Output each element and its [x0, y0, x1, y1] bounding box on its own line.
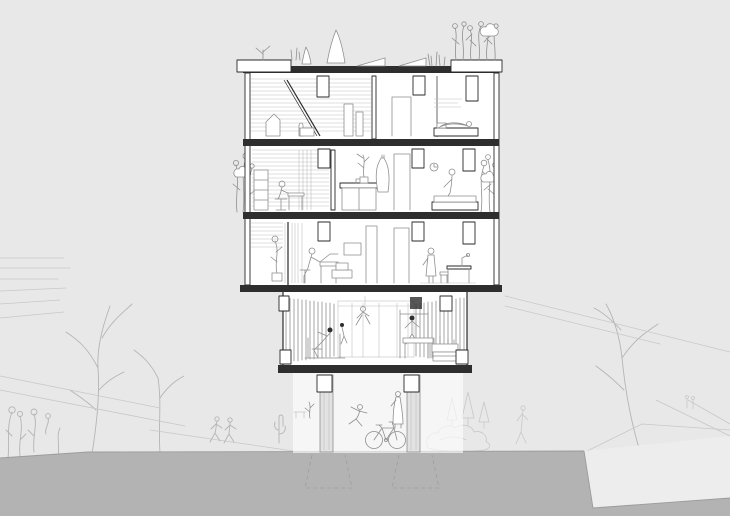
- section-drawing: [0, 0, 730, 516]
- beam-stub-right: [404, 375, 419, 392]
- kitchen-counter: [340, 179, 378, 210]
- beam-section: [463, 222, 475, 244]
- architectural-section-figure: [0, 0, 730, 516]
- bottom-slab: [278, 365, 472, 373]
- planter-left: [237, 60, 291, 72]
- beam-section: [412, 149, 424, 168]
- beam-stub-left: [317, 375, 332, 392]
- beam-section: [463, 149, 475, 171]
- beam-section: [318, 222, 330, 241]
- bed-with-person-lying: [434, 122, 478, 137]
- floor-slab-1: [243, 139, 499, 146]
- box: [332, 270, 352, 278]
- floor-slab-3: [240, 285, 502, 292]
- bed: [432, 196, 478, 210]
- beam-section: [412, 222, 424, 241]
- wall-cabinet: [410, 297, 422, 309]
- low-table: [300, 128, 314, 136]
- left-wall: [245, 73, 250, 285]
- box: [336, 263, 348, 270]
- corner-post: [440, 296, 452, 311]
- cabinet: [344, 104, 353, 136]
- beam-section: [317, 76, 329, 97]
- corner-post: [279, 296, 289, 311]
- beam-section: [466, 76, 478, 101]
- planter-right: [451, 60, 502, 72]
- corner-post: [280, 350, 291, 364]
- cabinet: [356, 112, 363, 136]
- beam-section: [413, 76, 425, 95]
- floor-slab-2: [243, 212, 499, 219]
- corner-post: [456, 350, 468, 364]
- partition: [331, 150, 335, 210]
- beam-section: [318, 149, 330, 168]
- partition: [372, 76, 376, 139]
- right-wall: [494, 73, 499, 285]
